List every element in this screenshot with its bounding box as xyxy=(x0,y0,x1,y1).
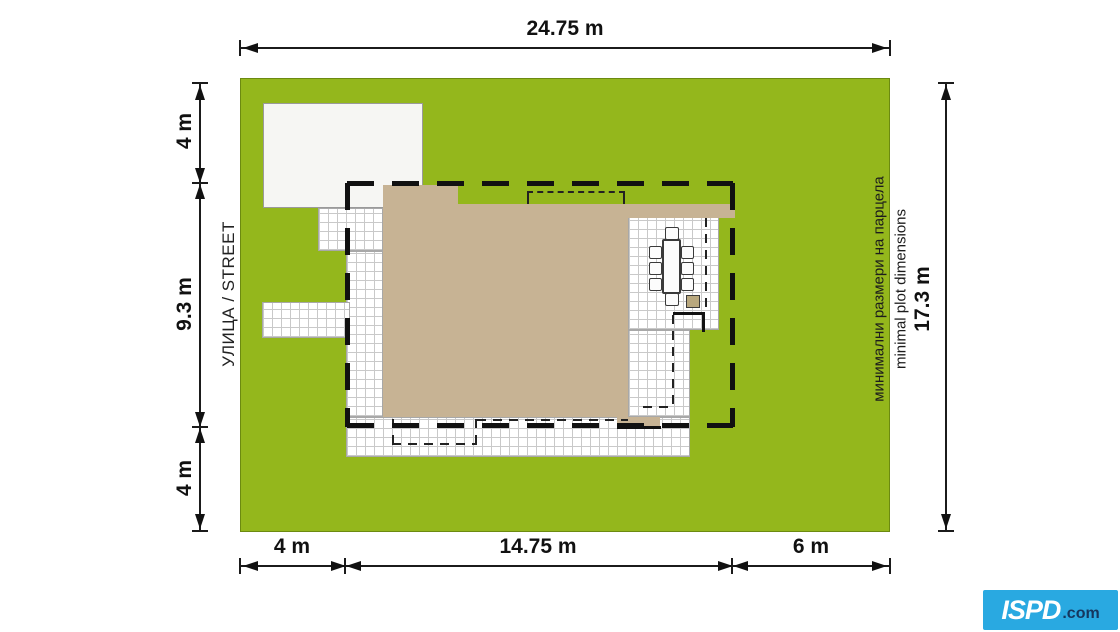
dim-left-bowtie-2a xyxy=(195,412,205,427)
plot-note-english: minimal plot dimensions xyxy=(893,209,910,369)
chair-right-2 xyxy=(681,262,694,275)
dim-left-bowtie-1b xyxy=(195,184,205,199)
brand-logo: ISPD.com xyxy=(983,590,1118,630)
paving-west-walkway xyxy=(346,251,383,417)
dim-bottom-label-mid: 14.75 m xyxy=(499,535,576,559)
dim-top-label: 24.75 m xyxy=(526,17,603,41)
grill-square xyxy=(686,295,700,308)
dim-bottom-label-left: 4 m xyxy=(274,535,310,559)
setback-envelope-bottom xyxy=(347,423,733,428)
chair-left-3 xyxy=(649,278,662,291)
paving-terrace-lower xyxy=(628,330,690,417)
dim-left-line xyxy=(199,83,201,532)
dim-left-arrow-bottom xyxy=(195,514,205,529)
brand-logo-text: ISPD xyxy=(1001,597,1060,624)
setback-envelope-top xyxy=(347,181,733,186)
dim-bottom-bowtie-1b xyxy=(346,561,361,571)
chair-right-1 xyxy=(681,246,694,259)
dim-left-label-top: 4 m xyxy=(173,113,197,149)
dim-left-label-bottom: 4 m xyxy=(173,460,197,496)
dim-bottom-bowtie-2a xyxy=(718,561,733,571)
roof-skylight-dashed-outline xyxy=(527,191,625,204)
dim-top-line xyxy=(240,47,890,49)
chair-top xyxy=(665,227,679,240)
dim-bottom-bowtie-1a xyxy=(331,561,346,571)
terrace-wall-horizontal xyxy=(673,312,705,315)
site-plan-canvas: 24.75 m 4 m 14.75 m 6 m 4 m 9.3 m 4 m 17… xyxy=(0,0,1120,632)
paving-entry-block xyxy=(318,208,383,251)
overhang-dash-east-lower xyxy=(672,315,674,408)
dim-right-label: 17.3 m xyxy=(911,266,935,331)
dim-left-bowtie-2b xyxy=(195,428,205,443)
dim-bottom-arrow-right xyxy=(872,561,887,571)
dim-left-bowtie-1a xyxy=(195,168,205,183)
dim-right-arrow-bottom xyxy=(941,514,951,529)
street-label: УЛИЦА / STREET xyxy=(219,221,239,367)
overhang-dash-south-bump-bottom xyxy=(392,443,477,445)
chair-left-2 xyxy=(649,262,662,275)
setback-envelope-right xyxy=(730,183,735,427)
dim-bottom-arrow-left xyxy=(243,561,258,571)
overhang-dash-south xyxy=(477,419,628,421)
overhang-dash-east-upper xyxy=(705,218,707,314)
dim-left-arrow-top xyxy=(195,85,205,100)
terrace-wall-vertical xyxy=(702,312,705,332)
chair-right-3 xyxy=(681,278,694,291)
dim-bottom-bowtie-2b xyxy=(733,561,748,571)
dim-right-arrow-top xyxy=(941,85,951,100)
dim-right-line xyxy=(945,83,947,532)
setback-envelope-left xyxy=(345,183,350,427)
dim-top-arrow-right xyxy=(872,43,887,53)
overhang-dash-east-foot xyxy=(643,406,673,408)
dim-bottom-label-right: 6 m xyxy=(793,535,829,559)
chair-bottom xyxy=(665,293,679,306)
dim-top-arrow-left xyxy=(243,43,258,53)
chair-left-1 xyxy=(649,246,662,259)
plot-note-bulgarian: минимални размери на парцела xyxy=(871,176,888,402)
paving-street-sidewalk xyxy=(262,302,350,338)
dim-left-label-mid: 9.3 m xyxy=(173,277,197,331)
brand-logo-suffix: .com xyxy=(1062,598,1099,622)
dining-table xyxy=(662,239,681,294)
